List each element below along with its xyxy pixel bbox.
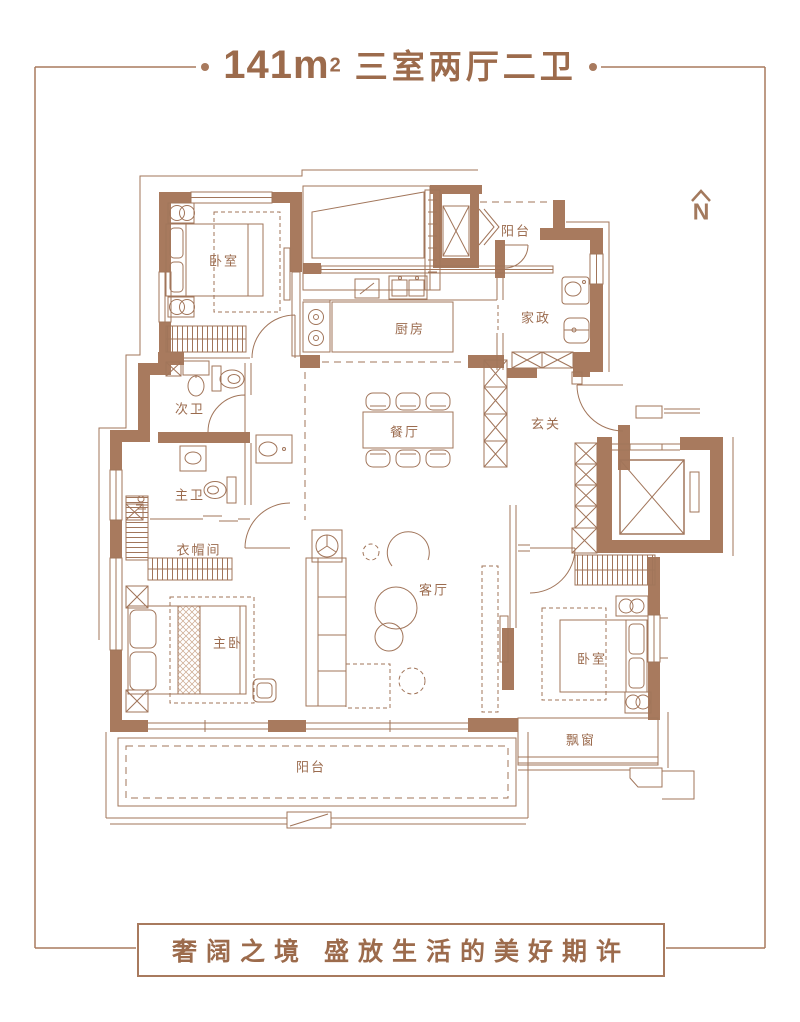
room-label-bedroom-right: 卧室 — [577, 649, 607, 668]
tagline-box: 奢阔之境 盛放生活的美好期许 — [137, 923, 665, 977]
bed-right — [542, 555, 655, 713]
room-label-closet: 衣帽间 — [176, 540, 221, 559]
closet-wardrobe — [126, 496, 232, 580]
open-boundaries — [305, 202, 550, 520]
doors — [203, 209, 623, 593]
room-label-balcony-top: 阳台 — [501, 221, 531, 240]
room-label-laundry: 家政 — [521, 308, 551, 327]
room-label-dining: 餐厅 — [390, 422, 420, 441]
floorplan-drawing: .w{fill:#A87A5E;stroke:none;} .s{fill:no… — [0, 0, 800, 1022]
bay-window-shape — [518, 718, 662, 787]
layout-type: 三室两厅二卫 — [355, 48, 577, 85]
room-label-bedroom-top-left: 卧室 — [209, 251, 239, 270]
kitchen-fixtures — [303, 276, 497, 352]
tagline-text: 奢阔之境 盛放生活的美好期许 — [172, 932, 630, 968]
room-label-master-bath: 主卫 — [175, 485, 205, 504]
walls — [110, 185, 723, 732]
bed-master — [126, 586, 276, 712]
shear-columns — [484, 352, 597, 553]
laundry-fixtures — [562, 277, 589, 343]
master-bath-fixtures — [126, 435, 292, 520]
room-label-foyer: 玄关 — [531, 414, 561, 433]
bottom-balcony — [106, 732, 528, 828]
equipment-platform — [303, 186, 469, 290]
floorplan-page: .w{fill:#A87A5E;stroke:none;} .s{fill:no… — [0, 0, 800, 1022]
room-label-balcony-bottom: 阳台 — [296, 757, 326, 776]
room-label-living: 客厅 — [419, 580, 449, 599]
room-label-bay-window: 飘窗 — [566, 730, 596, 749]
guest-bath-fixtures — [166, 361, 244, 396]
room-label-guest-bath: 次卫 — [175, 399, 205, 418]
room-label-kitchen: 厨房 — [395, 319, 425, 338]
north-label: N — [693, 199, 710, 226]
room-label-master-bedroom: 主卧 — [213, 633, 243, 652]
living-furniture — [306, 530, 508, 712]
area-value: 141m — [223, 43, 329, 87]
page-title: 141m2三室两厅二卫 — [0, 40, 800, 88]
area-exponent: 2 — [330, 55, 341, 77]
